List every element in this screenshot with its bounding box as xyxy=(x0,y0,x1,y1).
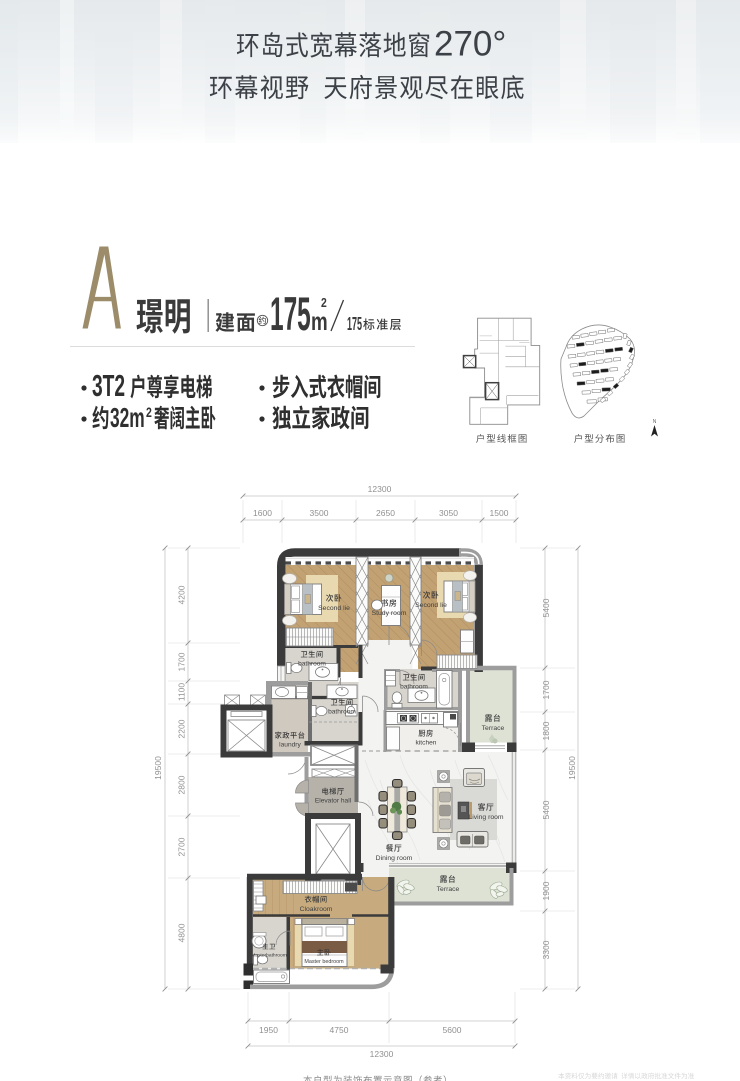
svg-text:1700: 1700 xyxy=(541,680,551,699)
svg-text:1800: 1800 xyxy=(541,721,551,740)
svg-text:Second lie: Second lie xyxy=(318,605,350,612)
svg-text:3300: 3300 xyxy=(541,940,551,959)
svg-text:1900: 1900 xyxy=(541,881,551,900)
svg-text:Master bedroom: Master bedroom xyxy=(304,959,344,965)
svg-text:1600: 1600 xyxy=(253,508,272,518)
svg-text:Terrace: Terrace xyxy=(437,886,460,893)
svg-text:3500: 3500 xyxy=(310,508,329,518)
svg-text:Terrace: Terrace xyxy=(482,725,505,732)
svg-text:5400: 5400 xyxy=(541,800,551,819)
svg-text:2800: 2800 xyxy=(177,775,187,794)
svg-text:32m: 32m xyxy=(110,402,145,433)
svg-text:Elevator hall: Elevator hall xyxy=(315,798,352,805)
svg-text:4200: 4200 xyxy=(177,585,187,604)
svg-text:m: m xyxy=(311,307,328,335)
svg-text:12300: 12300 xyxy=(370,1049,394,1059)
svg-text:Second lie: Second lie xyxy=(415,602,447,609)
svg-text:kitchen: kitchen xyxy=(416,740,437,747)
svg-text:2: 2 xyxy=(146,405,152,421)
svg-text:Cloakroom: Cloakroom xyxy=(300,906,333,913)
svg-text:laundry: laundry xyxy=(279,742,301,749)
svg-text:bathroom: bathroom xyxy=(298,661,326,668)
svg-text:3050: 3050 xyxy=(439,508,458,518)
svg-text:1500: 1500 xyxy=(490,508,509,518)
svg-text:5400: 5400 xyxy=(541,598,551,617)
svg-text:175: 175 xyxy=(347,315,362,335)
svg-text:1100: 1100 xyxy=(177,683,187,702)
svg-text:Masterbathroom: Masterbathroom xyxy=(251,953,287,959)
svg-text:Study room: Study room xyxy=(372,610,407,617)
svg-text:2650: 2650 xyxy=(376,508,395,518)
svg-text:Living room: Living room xyxy=(468,814,503,821)
svg-text:4800: 4800 xyxy=(177,923,187,942)
svg-text:2: 2 xyxy=(321,296,327,310)
svg-text:3T2: 3T2 xyxy=(92,370,125,404)
svg-text:N: N xyxy=(653,419,657,425)
svg-text:270°: 270° xyxy=(434,25,506,64)
svg-text:2200: 2200 xyxy=(177,719,187,738)
svg-text:12300: 12300 xyxy=(368,484,392,494)
svg-text:19500: 19500 xyxy=(567,756,577,780)
svg-text:bathroom: bathroom xyxy=(400,684,428,691)
svg-text:Dining room: Dining room xyxy=(376,855,413,862)
svg-text:4750: 4750 xyxy=(330,1025,349,1035)
svg-text:1700: 1700 xyxy=(177,652,187,671)
svg-text:5600: 5600 xyxy=(443,1025,462,1035)
svg-text:1950: 1950 xyxy=(259,1025,278,1035)
svg-text:2700: 2700 xyxy=(177,837,187,856)
svg-text:19500: 19500 xyxy=(153,756,163,780)
svg-text:bathroom: bathroom xyxy=(328,709,356,716)
svg-text:175: 175 xyxy=(270,287,311,340)
